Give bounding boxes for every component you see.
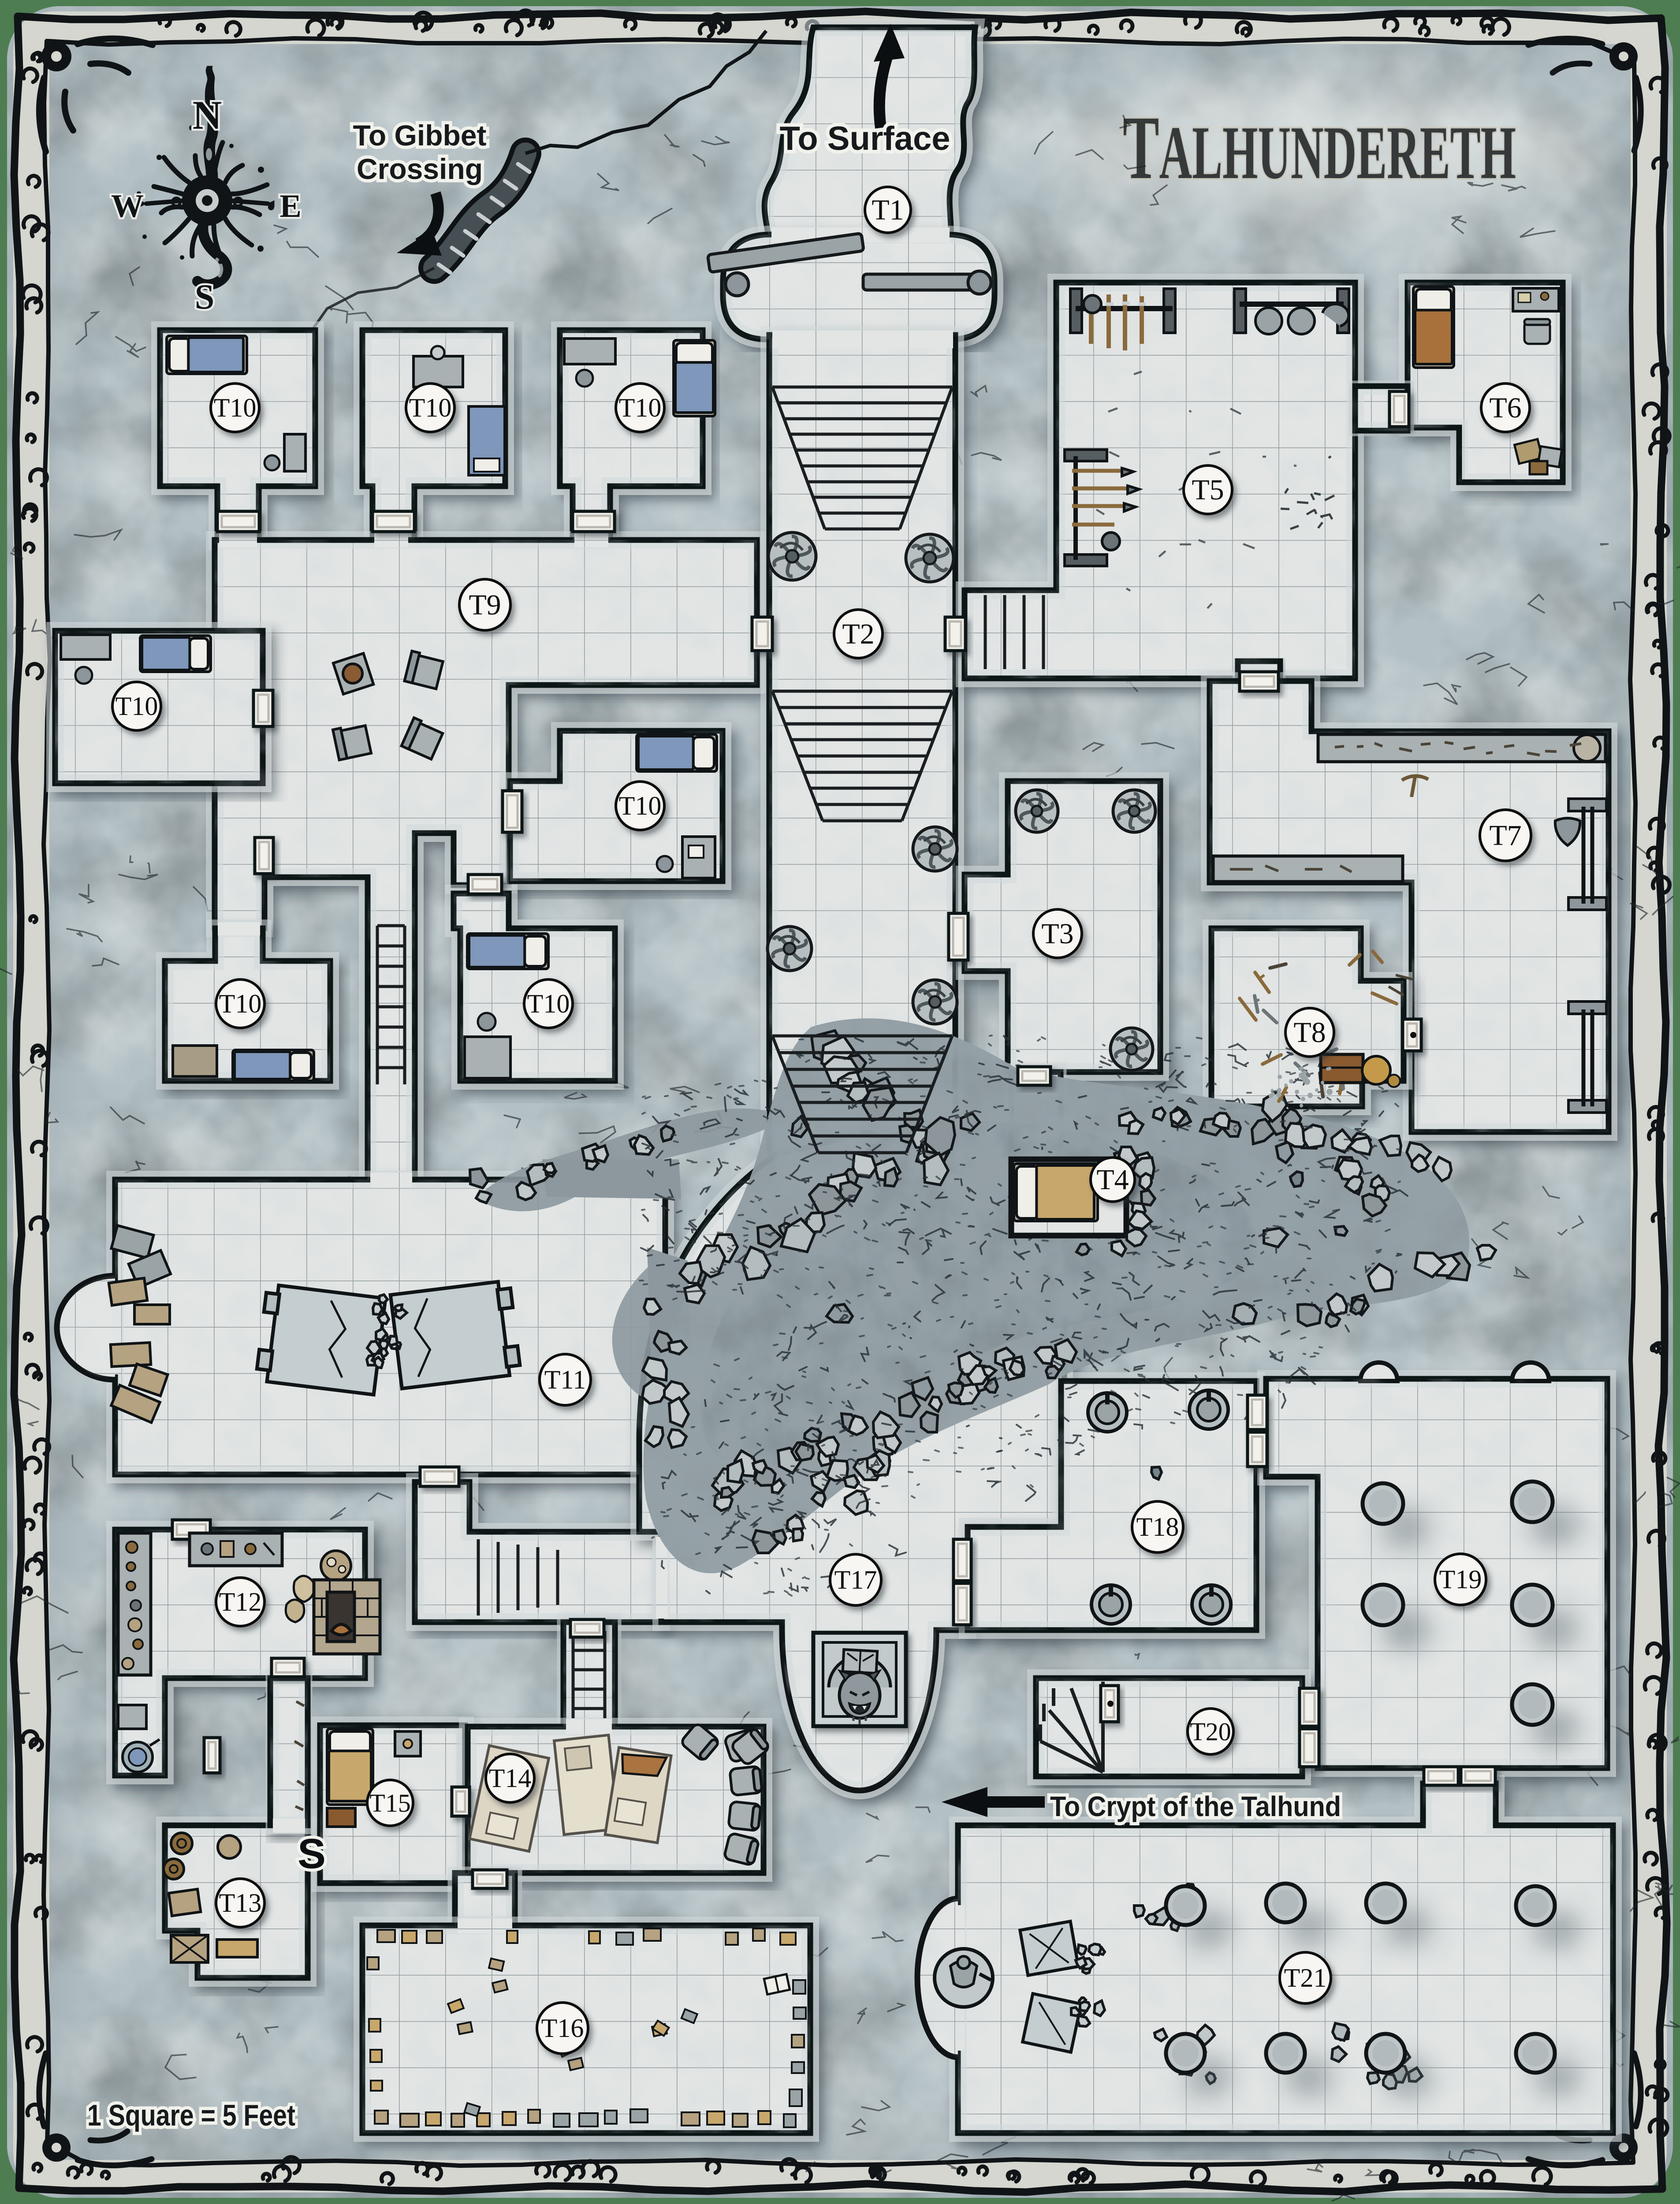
svg-text:T6: T6 (1489, 392, 1521, 424)
svg-text:S: S (195, 278, 215, 316)
svg-text:T8: T8 (1293, 1016, 1326, 1049)
svg-text:T10: T10 (409, 393, 452, 422)
svg-text:Crossing: Crossing (357, 153, 483, 185)
svg-text:S: S (298, 1830, 326, 1877)
svg-text:T1: T1 (872, 194, 904, 226)
svg-text:To Crypt of the Talhund: To Crypt of the Talhund (1050, 1791, 1341, 1822)
svg-text:T4: T4 (1096, 1164, 1129, 1196)
svg-text:TALHUNDERETH: TALHUNDERETH (1123, 97, 1516, 198)
svg-text:T20: T20 (1190, 1717, 1231, 1746)
svg-text:T17: T17 (834, 1565, 877, 1594)
svg-text:W: W (111, 188, 144, 224)
svg-text:T13: T13 (219, 1888, 262, 1917)
svg-text:1 Square = 5 Feet: 1 Square = 5 Feet (87, 2099, 295, 2132)
svg-text:T3: T3 (1041, 918, 1073, 950)
svg-text:N: N (193, 93, 222, 138)
svg-text:T5: T5 (1192, 474, 1224, 506)
svg-text:T14: T14 (489, 1764, 532, 1793)
svg-text:T16: T16 (541, 2014, 584, 2043)
svg-text:T18: T18 (1136, 1512, 1179, 1541)
svg-text:T7: T7 (1489, 819, 1521, 852)
svg-text:T10: T10 (619, 791, 662, 820)
svg-text:T15: T15 (369, 1789, 410, 1817)
svg-text:T10: T10 (219, 989, 262, 1018)
svg-text:T12: T12 (219, 1587, 262, 1616)
svg-text:T11: T11 (544, 1365, 586, 1394)
svg-text:To Surface: To Surface (779, 120, 950, 157)
svg-text:T2: T2 (842, 618, 874, 650)
svg-text:E: E (279, 188, 301, 224)
svg-text:T9: T9 (469, 589, 501, 621)
svg-text:T19: T19 (1439, 1565, 1482, 1594)
svg-text:T10: T10 (527, 989, 570, 1018)
svg-text:To Gibbet: To Gibbet (353, 119, 486, 152)
svg-text:T10: T10 (619, 393, 662, 422)
svg-text:T10: T10 (214, 393, 257, 422)
svg-text:T10: T10 (115, 692, 158, 721)
svg-text:T21: T21 (1284, 1963, 1327, 1992)
